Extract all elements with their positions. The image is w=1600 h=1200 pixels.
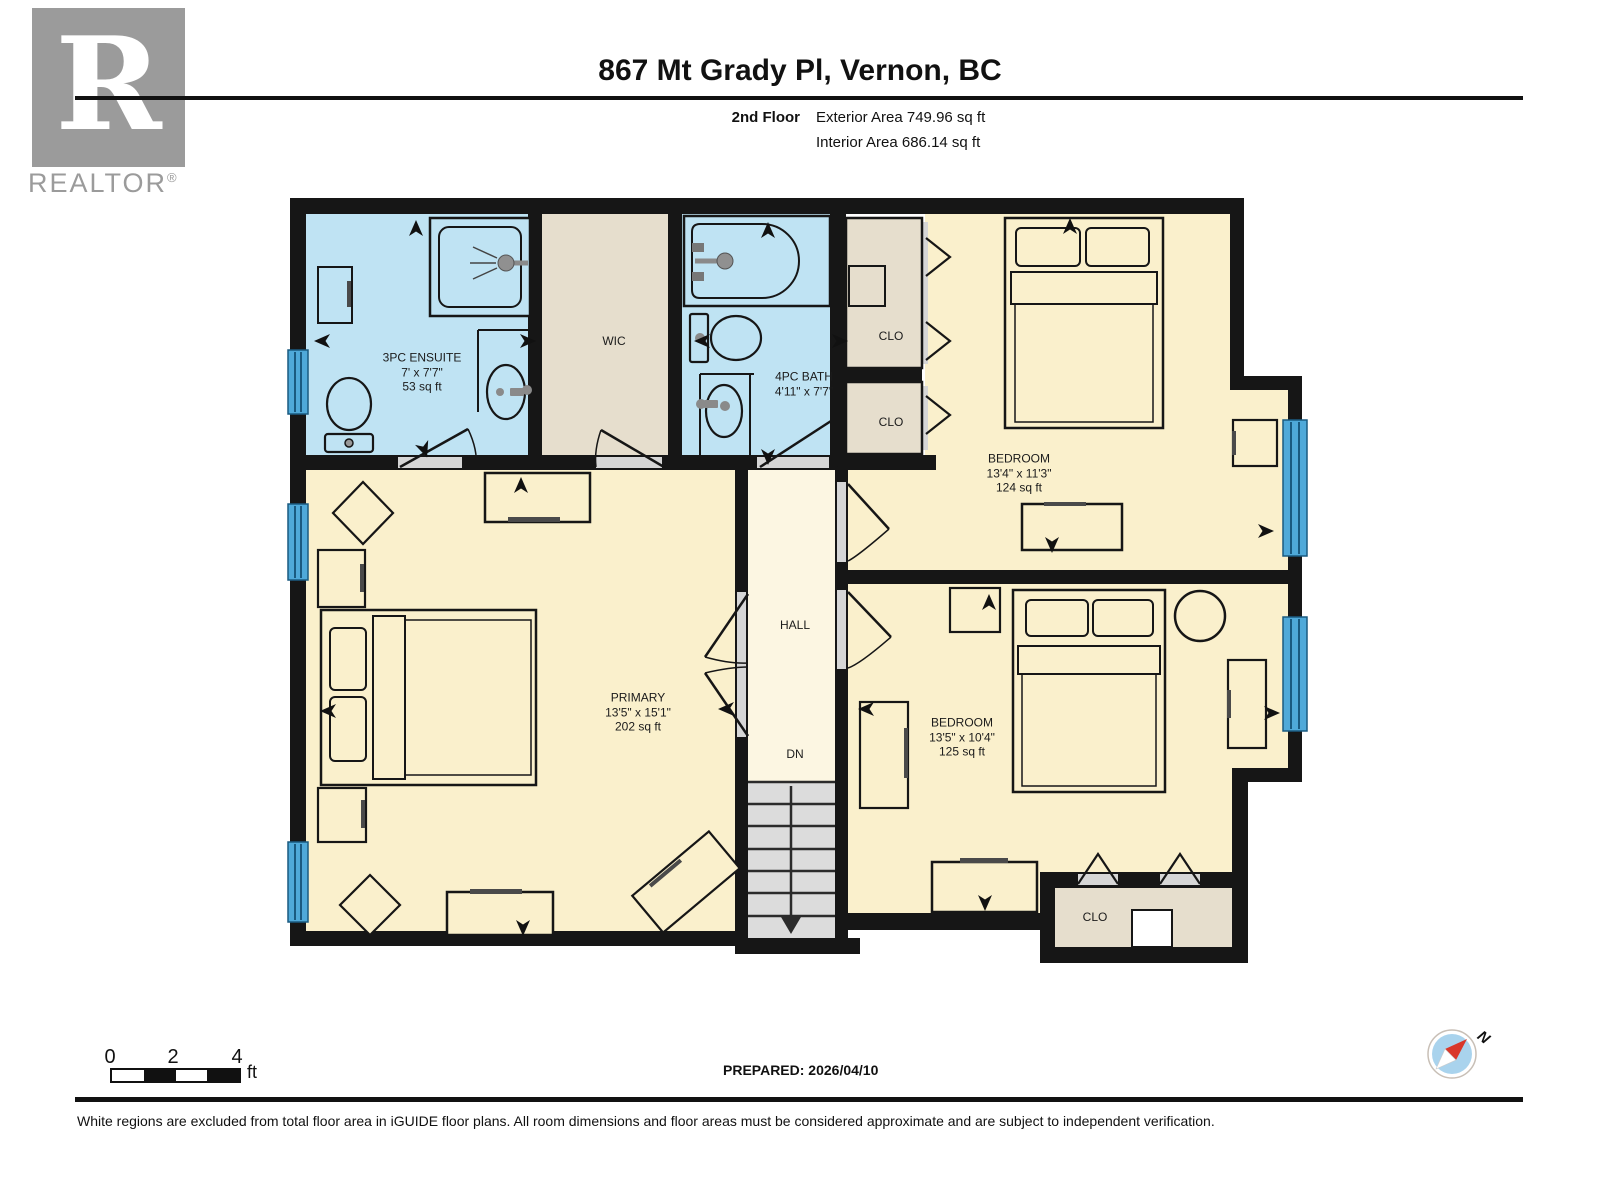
tub-faucet-icon bbox=[717, 253, 733, 269]
compass-icon bbox=[1428, 1030, 1476, 1078]
shower bbox=[430, 218, 530, 316]
floor-plan-page: R REALTOR® 867 Mt Grady Pl, Vernon, BC 2… bbox=[0, 0, 1600, 1200]
floor-plan-svg bbox=[0, 0, 1600, 1200]
footer-divider bbox=[75, 1097, 1523, 1102]
nightstand bbox=[1233, 420, 1277, 466]
dresser bbox=[1022, 504, 1122, 550]
label-bedroom-ne: BEDROOM 13'4" x 11'3" 124 sq ft bbox=[987, 451, 1052, 495]
label-clo-upper: CLO bbox=[879, 329, 904, 344]
label-primary: PRIMARY 13'5" x 15'1" 202 sq ft bbox=[605, 690, 671, 734]
label-dn: DN bbox=[786, 747, 803, 762]
window bbox=[1283, 420, 1307, 556]
closet-post bbox=[1132, 910, 1172, 947]
disclaimer-text: White regions are excluded from total fl… bbox=[77, 1113, 1537, 1129]
pillow bbox=[330, 628, 366, 690]
window bbox=[288, 504, 308, 580]
toilet bbox=[711, 316, 761, 360]
pillow bbox=[1016, 228, 1080, 266]
pillow bbox=[1093, 600, 1153, 636]
round-table bbox=[1175, 591, 1225, 641]
toilet bbox=[327, 378, 371, 430]
cabinet bbox=[318, 267, 352, 323]
prepared-date: PREPARED: 2026/04/10 bbox=[723, 1062, 878, 1078]
label-bath: 4PC BATH 4'11" x 7'7" bbox=[775, 370, 833, 399]
dresser bbox=[1228, 660, 1266, 748]
label-clo-bottom: CLO bbox=[1083, 910, 1108, 925]
staircase bbox=[748, 782, 835, 938]
pillow bbox=[1026, 600, 1088, 636]
nightstand bbox=[318, 788, 366, 842]
scale-tick-2: 2 bbox=[158, 1046, 188, 1069]
label-wic: WIC bbox=[602, 334, 625, 349]
nightstand bbox=[318, 550, 365, 607]
window bbox=[1283, 617, 1307, 731]
dresser bbox=[485, 473, 590, 522]
scale-unit: ft bbox=[247, 1062, 257, 1083]
pillow bbox=[1086, 228, 1149, 266]
label-clo-lower: CLO bbox=[879, 415, 904, 430]
label-bedroom-se: BEDROOM 13'5" x 10'4" 125 sq ft bbox=[929, 715, 995, 759]
window bbox=[288, 842, 308, 922]
pillow bbox=[330, 697, 366, 761]
sink bbox=[706, 385, 742, 437]
label-hall: HALL bbox=[780, 618, 810, 633]
scale-bar bbox=[110, 1068, 241, 1083]
label-ensuite: 3PC ENSUITE 7' x 7'7" 53 sq ft bbox=[383, 350, 462, 394]
nightstand bbox=[950, 588, 1000, 632]
window bbox=[288, 350, 308, 414]
dresser bbox=[447, 892, 553, 935]
scale-tick-0: 0 bbox=[95, 1046, 125, 1069]
shower-head-icon bbox=[498, 255, 514, 271]
desk bbox=[860, 702, 908, 808]
